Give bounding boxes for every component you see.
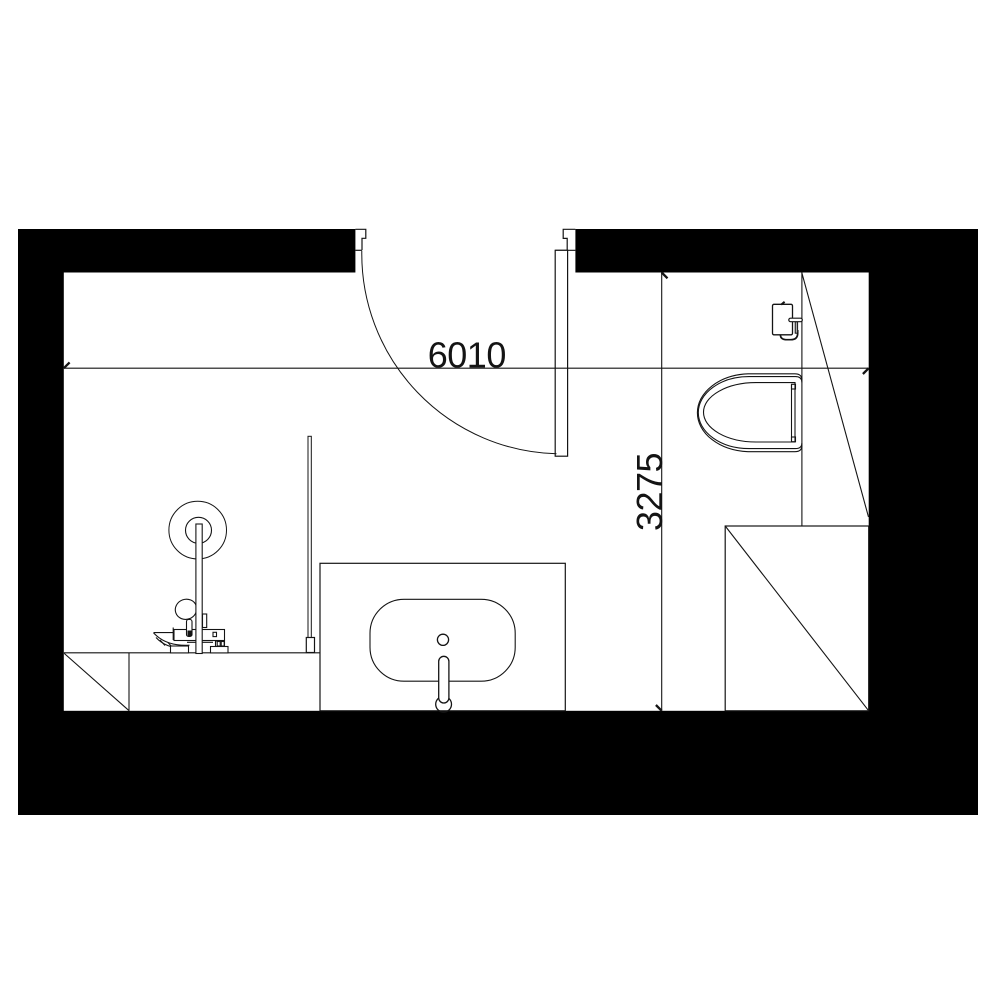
svg-text:3275: 3275 xyxy=(629,453,670,531)
svg-text:6010: 6010 xyxy=(428,334,506,375)
